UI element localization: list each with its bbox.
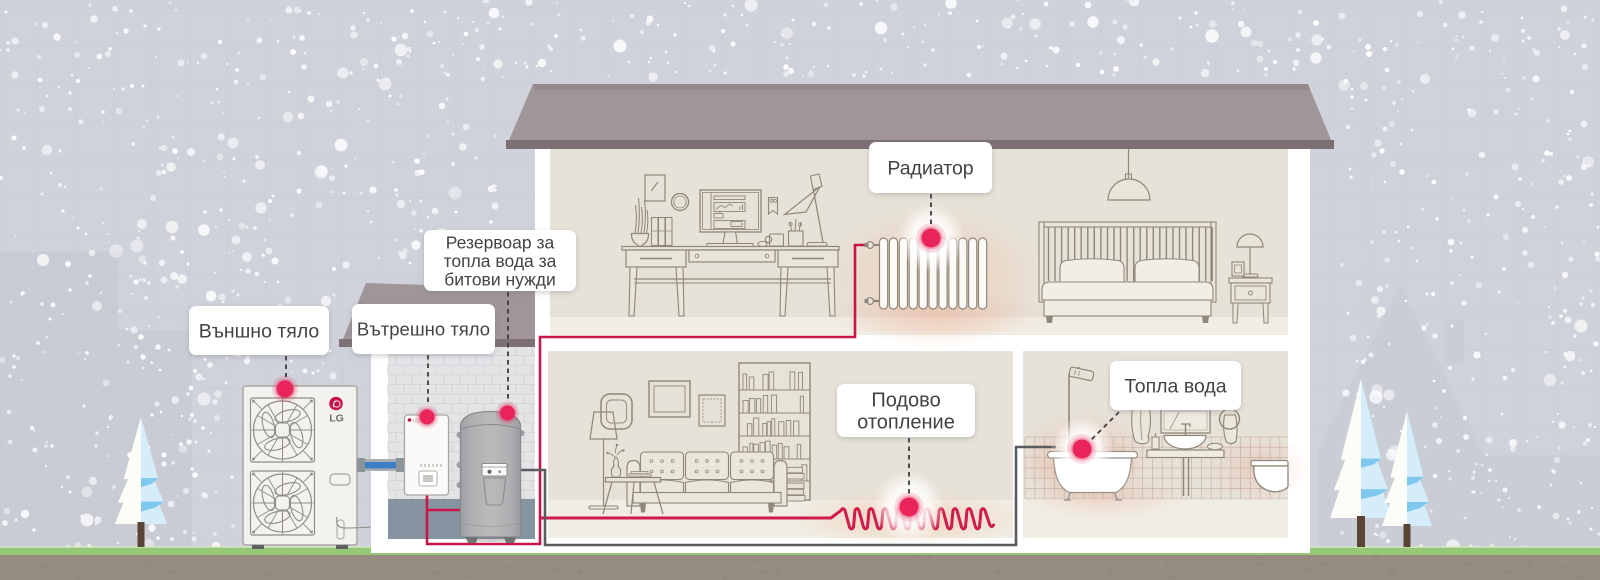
svg-text:Топла вода: Топла вода	[1124, 376, 1226, 398]
svg-text:Вътрешно тяло: Вътрешно тяло	[357, 319, 490, 340]
svg-text:отопление: отопление	[857, 412, 955, 434]
svg-text:Външно тяло: Външно тяло	[199, 321, 320, 343]
svg-text:Резервоар за: Резервоар за	[446, 232, 555, 252]
svg-text:топла вода за: топла вода за	[444, 251, 557, 271]
svg-text:LG: LG	[329, 413, 344, 425]
svg-text:Подово: Подово	[871, 390, 940, 412]
svg-text:Радиатор: Радиатор	[887, 158, 973, 180]
svg-text:битови нужди: битови нужди	[444, 269, 556, 289]
